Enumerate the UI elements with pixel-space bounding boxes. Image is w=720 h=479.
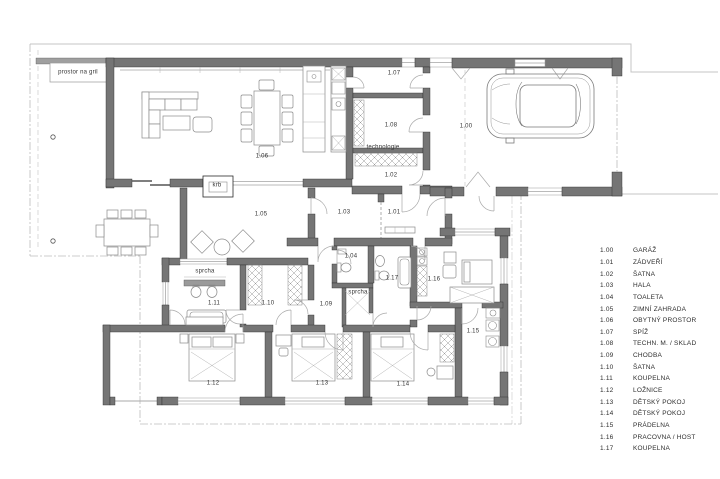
legend-room-number: 1.03 — [600, 282, 633, 289]
storage-hatch-1-08 — [354, 100, 364, 146]
legend-room-number: 1.16 — [600, 434, 633, 441]
legend-room-name: GARÁŽ — [633, 247, 656, 254]
legend-room-name: DĚTSKÝ POKOJ — [633, 399, 685, 406]
office-furniture — [417, 248, 494, 303]
room-legend: 1.00GARÁŽ1.01ZÁDVEŘÍ1.02ŠATNA1.03HALA1.0… — [600, 245, 696, 455]
legend-room-name: KOUPELNA — [633, 445, 670, 452]
shower-label-2: sprcha — [348, 290, 367, 297]
legend-row: 1.03HALA — [600, 280, 696, 292]
room-number-1-15: 1.15 — [467, 329, 479, 336]
room-number-1-03: 1.03 — [338, 210, 350, 217]
sofa — [142, 92, 198, 138]
legend-room-number: 1.11 — [600, 375, 633, 382]
dining-table-with-chairs — [241, 80, 293, 156]
legend-row: 1.07SPÍŽ — [600, 326, 696, 338]
entry-bench — [385, 227, 415, 233]
legend-row: 1.05ZIMNÍ ZAHRADA — [600, 303, 696, 315]
room-number-1-07: 1.07 — [388, 71, 400, 78]
legend-row: 1.16PRACOVNA / HOST — [600, 431, 696, 443]
grill-area-label: prostor na gril — [58, 70, 98, 77]
wardrobe-hatch-left — [248, 265, 262, 305]
floor-plan-page: prostor na grilkrb1.061.071.08technologi… — [0, 0, 720, 479]
car-icon — [487, 69, 594, 143]
wardrobe-hatch-right — [288, 265, 302, 305]
legend-room-name: CHODBA — [633, 352, 662, 359]
room-number-1-11: 1.11 — [208, 301, 220, 308]
legend-row: 1.12LOŽNICE — [600, 385, 696, 397]
legend-room-name: TOALETA — [633, 294, 663, 301]
room-number-1-01: 1.01 — [388, 210, 400, 217]
legend-room-name: PRÁDELNA — [633, 422, 670, 429]
room-number-1-17: 1.17 — [386, 276, 398, 283]
legend-row: 1.17KOUPELNA — [600, 443, 696, 455]
room-number-1-00: 1.00 — [460, 124, 472, 131]
winter-garden-furniture — [191, 230, 255, 255]
legend-room-name: ZÁDVEŘÍ — [633, 259, 663, 266]
shower-label-1: sprcha — [195, 269, 214, 276]
legend-room-number: 1.15 — [600, 422, 633, 429]
legend-room-number: 1.09 — [600, 352, 633, 359]
room-number-1-14: 1.14 — [397, 382, 409, 389]
legend-room-number: 1.08 — [600, 340, 633, 347]
technology-label: technologie — [367, 145, 400, 152]
legend-room-number: 1.10 — [600, 364, 633, 371]
kitchen-counters — [303, 66, 346, 152]
legend-row: 1.10ŠATNA — [600, 361, 696, 373]
legend-row: 1.04TOALETA — [600, 292, 696, 304]
legend-room-name: ŠATNA — [633, 364, 655, 371]
room-number-1-13: 1.13 — [316, 381, 328, 388]
legend-room-name: PRACOVNA / HOST — [633, 434, 696, 441]
room-number-1-12: 1.12 — [207, 381, 219, 388]
bed-single-1-13 — [276, 334, 335, 381]
room-number-1-06: 1.06 — [256, 154, 268, 161]
room-number-1-08: 1.08 — [385, 123, 397, 130]
legend-room-number: 1.17 — [600, 445, 633, 452]
room-number-1-02: 1.02 — [385, 173, 397, 180]
legend-room-name: ŠATNA — [633, 271, 655, 278]
toilet-fixtures-1-04 — [337, 249, 351, 272]
legend-room-number: 1.13 — [600, 399, 633, 406]
legend-row: 1.01ZÁDVEŘÍ — [600, 257, 696, 269]
legend-row: 1.11KOUPELNA — [600, 373, 696, 385]
room-number-1-10: 1.10 — [262, 301, 274, 308]
laundry-appliances — [486, 308, 500, 347]
legend-room-number: 1.02 — [600, 271, 633, 278]
legend-room-name: KOUPELNA — [633, 375, 670, 382]
room-number-1-09: 1.09 — [320, 302, 332, 309]
legend-room-number: 1.01 — [600, 259, 633, 266]
legend-room-name: LOŽNICE — [633, 387, 663, 394]
legend-room-number: 1.04 — [600, 294, 633, 301]
legend-room-name: HALA — [633, 282, 651, 289]
legend-room-name: DĚTSKÝ POKOJ — [633, 410, 685, 417]
legend-room-number: 1.07 — [600, 329, 633, 336]
room-number-1-05: 1.05 — [255, 212, 267, 219]
legend-row: 1.13DĚTSKÝ POKOJ — [600, 396, 696, 408]
legend-row: 1.06OBYTNÝ PROSTOR — [600, 315, 696, 327]
fireplace-label: krb — [213, 183, 222, 190]
legend-room-number: 1.05 — [600, 306, 633, 313]
room-number-1-16: 1.16 — [428, 277, 440, 284]
wardrobe-hatch-1-13 — [337, 334, 352, 379]
legend-room-name: OBYTNÝ PROSTOR — [633, 317, 696, 324]
legend-row: 1.00GARÁŽ — [600, 245, 696, 257]
legend-row: 1.02ŠATNA — [600, 268, 696, 280]
legend-row: 1.15PRÁDELNA — [600, 420, 696, 432]
coffee-table — [163, 116, 190, 130]
legend-row: 1.08TECHN. M. / SKLAD — [600, 338, 696, 350]
legend-row: 1.09CHODBA — [600, 350, 696, 362]
legend-room-number: 1.14 — [600, 410, 633, 417]
legend-row: 1.14DĚTSKÝ POKOJ — [600, 408, 696, 420]
legend-room-number: 1.00 — [600, 247, 633, 254]
room-number-1-04: 1.04 — [345, 254, 357, 261]
wardrobe-hatch-1-02 — [355, 153, 417, 166]
legend-room-name: TECHN. M. / SKLAD — [633, 340, 696, 347]
wardrobe-hatch-1-14 — [440, 334, 454, 362]
armchair-living — [193, 117, 212, 132]
outdoor-dining-table — [96, 210, 158, 255]
legend-room-number: 1.06 — [600, 317, 633, 324]
legend-room-name: ZIMNÍ ZAHRADA — [633, 306, 686, 313]
legend-room-name: SPÍŽ — [633, 329, 648, 336]
legend-room-number: 1.12 — [600, 387, 633, 394]
